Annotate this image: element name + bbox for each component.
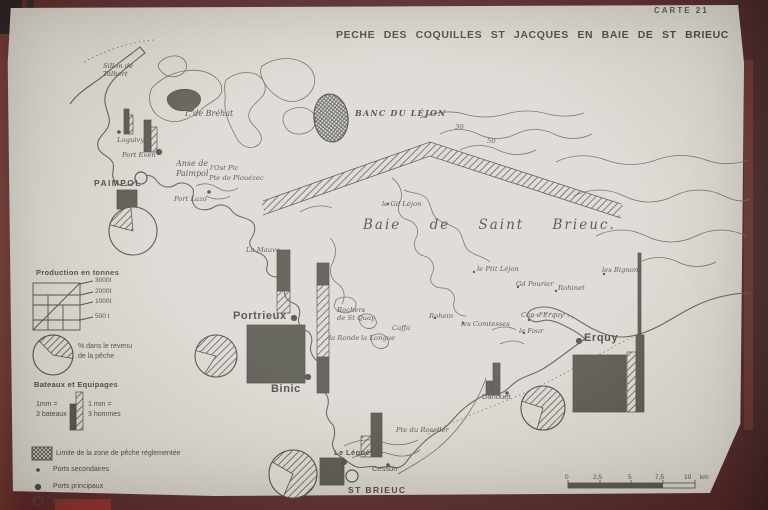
map-label-port-even: Port Even — [122, 151, 156, 159]
scalebar-tick: 10 — [684, 474, 691, 481]
boats-bar-binic — [317, 263, 329, 285]
map-label-baie-de-saint-brieuc-: Baie de Saint Brieuc. — [363, 217, 616, 234]
map-label-anse-de: Anse de Paimpol — [176, 159, 208, 179]
legend-main-ports-label: Ports principaux — [53, 482, 103, 492]
legend-zone-label: Limite de la zone de pêche réglementée — [56, 449, 181, 459]
map-label-banc-du-l-jon: BANC DU LÉJON — [355, 108, 447, 118]
main-port-symbol — [35, 484, 41, 490]
map-label-paimpol: PAIMPOL — [94, 178, 142, 189]
map-label-le-gd-l-jon: le Gd Léjon — [382, 200, 421, 208]
quartier-symbol — [34, 497, 43, 506]
production-tick: 2000t — [95, 288, 111, 295]
quartier-circle-st-brieuc — [346, 470, 358, 482]
legend-men-label: 1 mm = 3 hommes — [88, 400, 121, 420]
banc-du-lejon-ellipse — [312, 92, 351, 143]
scalebar-tick: 2,5 — [593, 474, 602, 481]
map-label-binic: Binic — [271, 383, 301, 397]
boats-bar-le-l-gu- — [371, 413, 382, 457]
legend-boats-label: 1mm = 3 bateaux — [36, 400, 67, 420]
map-label-caffa: Caffa — [392, 324, 410, 332]
legend-symbols — [32, 447, 52, 506]
map-label-rohinet: Rohinet — [558, 284, 585, 292]
map-label-gd-pourier: Gd Pourier — [516, 280, 553, 288]
map-label-i-de-br-hat: I. de Bréhat — [185, 109, 233, 119]
boats-bar-portrieux — [277, 250, 290, 291]
map-label-la-ronde: la Ronde — [329, 334, 359, 342]
legend-production-title: Production en tonnes — [36, 268, 119, 277]
map-label-30: 30 — [455, 123, 464, 131]
map-label-les-bignons: les Bignons — [602, 266, 642, 274]
production-square-erquy — [573, 355, 626, 412]
map-label-l-ost-pic: l'Ost Pic — [210, 164, 239, 172]
crew-bar-erquy — [627, 352, 636, 412]
port-dot-portrieux — [291, 315, 297, 321]
map-label-le-four: le Four — [519, 327, 543, 335]
crew-bar-port-even — [151, 127, 157, 152]
map-label-st-brieuc: ST BRIEUC — [348, 485, 406, 496]
port-dot-le-l-gu- — [341, 459, 347, 465]
port-dot-port-lazo — [207, 190, 211, 194]
scalebar-tick: 5 — [628, 474, 632, 481]
data-figures — [33, 109, 644, 498]
map-label-le-ptit-l-jon: le Ptit Léjon — [477, 265, 519, 273]
boats-bar-port-even — [144, 120, 151, 152]
crew-bar-loguivy — [129, 115, 133, 134]
boats-bar-loguivy — [124, 109, 129, 134]
production-scale-diagram — [33, 281, 93, 330]
crew-bar-legend-hommes — [76, 392, 83, 430]
zone-band — [263, 142, 621, 218]
production-square-st-brieuc — [320, 458, 344, 485]
boats-bar-dahouet — [493, 363, 500, 395]
legend-revenue-label: % dans le revenu de la pêche — [78, 342, 132, 362]
map-label-rohein: Rohein — [429, 312, 453, 320]
legend-quartiers-label: Quartiers — [53, 497, 82, 507]
map-label-erquy: Erquy — [584, 332, 618, 346]
secondary-port-symbol — [36, 468, 40, 472]
map-label-50: 50 — [487, 137, 496, 145]
map-label-sillon-de: Sillon de Talbert — [103, 62, 133, 79]
map-label-portrieux: Portrieux — [233, 310, 287, 324]
port-dot-loguivy — [117, 130, 121, 134]
map-label-la-mauve: La Mauve — [246, 246, 280, 254]
scalebar — [568, 480, 695, 488]
crew-bar-binic — [317, 285, 329, 357]
carte-number: CARTE 21 — [654, 6, 709, 15]
map-label-pte-de-plou-zec: Pte de Plouézec — [209, 174, 264, 182]
map-label-la-longue: la Longue — [361, 334, 395, 342]
boats-bar-binic — [317, 357, 329, 393]
map-label-cesson: Cesson — [372, 464, 397, 473]
photo-frame: CARTE 21 PECHE DES COQUILLES ST JACQUES … — [0, 0, 768, 510]
map-label-dahouet: Dahouet — [482, 392, 510, 401]
production-tick: 500 t — [95, 313, 109, 320]
map-label-pte-du-roselier: Pte du Roselier — [396, 426, 449, 434]
boats-bar-legend-bateaux — [70, 404, 76, 430]
map-label-le-l-gu-: Le Légué — [334, 448, 370, 457]
production-tick: 1000t — [95, 298, 111, 305]
port-dot-port-even — [156, 149, 162, 155]
legend-secondary-ports-label: Ports secondaires — [53, 465, 109, 475]
map-label-les-comtesses: les Comtesses — [461, 320, 510, 328]
map-label-cap-d-erquy: Cap d'Erquy — [521, 311, 564, 319]
port-dot-binic — [305, 374, 311, 380]
port-dot-erquy — [576, 338, 582, 344]
boats-bar-erquy — [636, 335, 644, 412]
legend-crews-title: Bateaux et Equipages — [34, 380, 118, 389]
scalebar-tick: 0 — [565, 474, 569, 481]
map-label-rochers: Rochers de St Quay — [337, 306, 375, 323]
production-square-portrieux-binic — [247, 325, 305, 383]
map-label-port-lazo: Port Lazo — [174, 195, 207, 203]
map-label-loguivy: Loguivy — [117, 136, 144, 144]
zone-swatch — [32, 447, 52, 460]
scalebar-tick: 7,5 — [655, 474, 664, 481]
contour-lines — [84, 40, 750, 474]
production-square-paimpol — [117, 190, 137, 209]
production-tick: 3000t — [95, 277, 111, 284]
map-title: PECHE DES COQUILLES ST JACQUES EN BAIE D… — [336, 29, 748, 41]
scalebar-unit: km — [700, 474, 709, 481]
